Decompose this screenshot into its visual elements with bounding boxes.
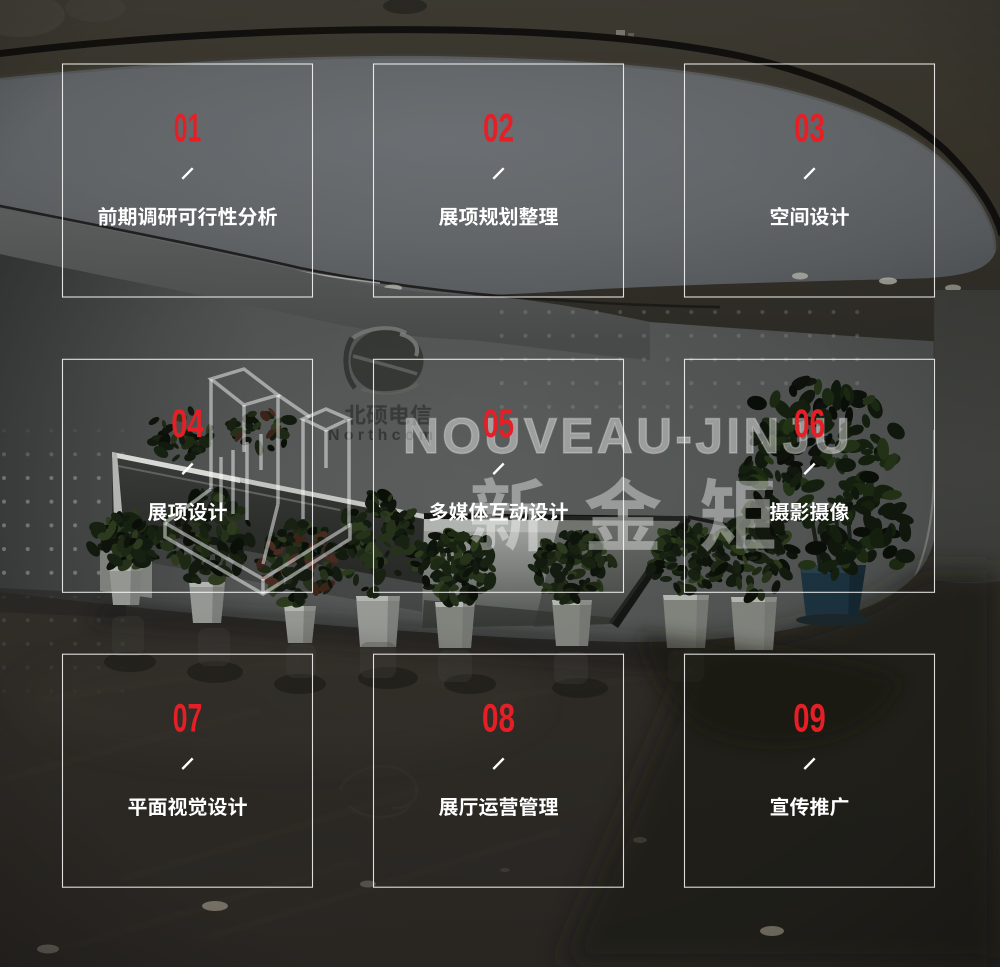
svg-text:05: 05 bbox=[483, 402, 514, 446]
svg-text:04: 04 bbox=[171, 402, 204, 446]
svg-text:01: 01 bbox=[174, 107, 202, 151]
svg-text:02: 02 bbox=[483, 107, 514, 151]
svg-text:NOUVEAU-JINJU: NOUVEAU-JINJU bbox=[403, 408, 853, 464]
svg-text:03: 03 bbox=[794, 107, 825, 151]
svg-text:08: 08 bbox=[482, 697, 515, 741]
svg-text:07: 07 bbox=[173, 697, 203, 741]
svg-text:09: 09 bbox=[793, 697, 826, 741]
svg-text:06: 06 bbox=[794, 402, 826, 446]
